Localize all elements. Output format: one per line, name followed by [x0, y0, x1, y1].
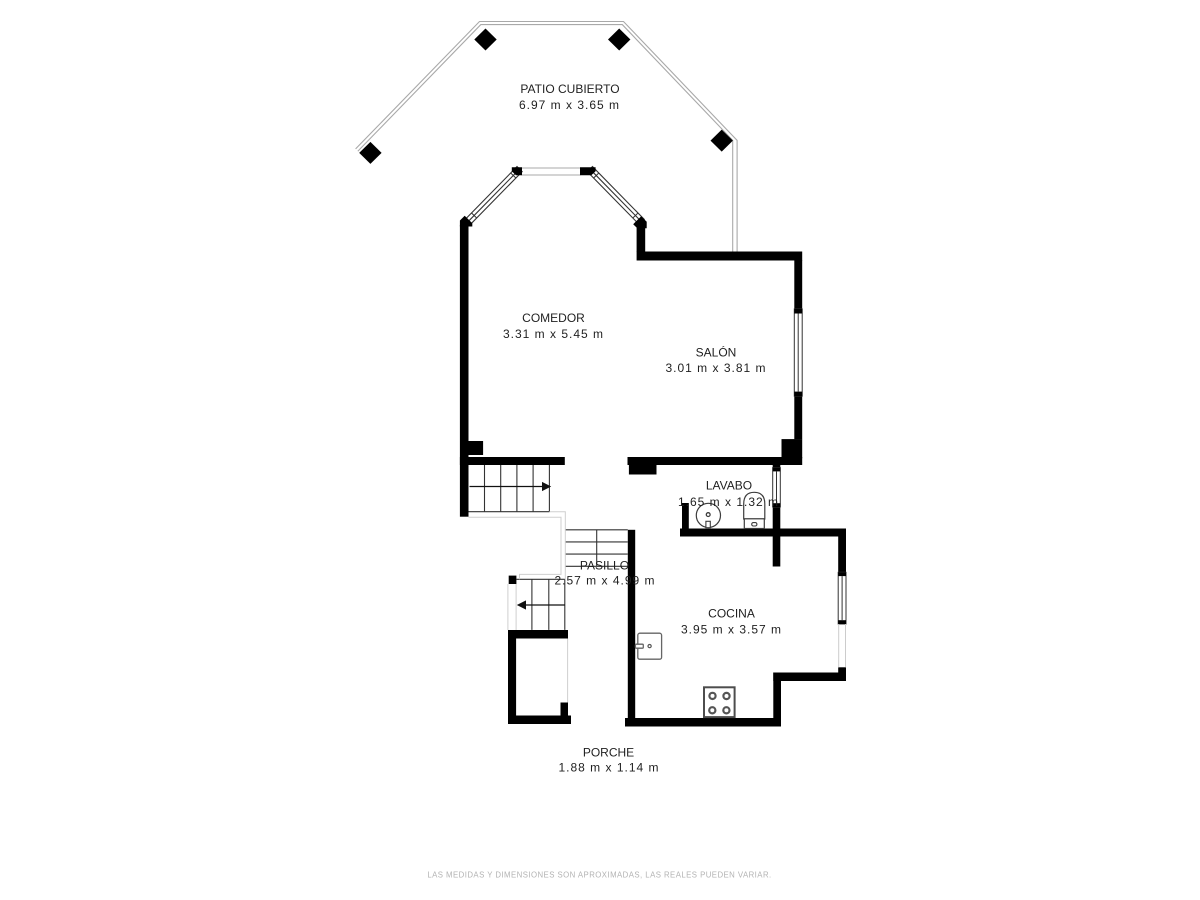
svg-text:3.01 m x 3.81 m: 3.01 m x 3.81 m — [665, 361, 766, 375]
svg-text:LAS MEDIDAS Y DIMENSIONES SON: LAS MEDIDAS Y DIMENSIONES SON APROXIMADA… — [427, 871, 771, 880]
svg-text:PATIO CUBIERTO: PATIO CUBIERTO — [520, 82, 619, 96]
svg-text:PORCHE: PORCHE — [583, 746, 634, 760]
svg-text:3.95 m x 3.57 m: 3.95 m x 3.57 m — [681, 623, 782, 637]
svg-text:1.65 m x 1.32 m: 1.65 m x 1.32 m — [678, 495, 779, 509]
svg-text:LAVABO: LAVABO — [706, 479, 752, 493]
svg-text:3.31 m x 5.45 m: 3.31 m x 5.45 m — [503, 327, 604, 341]
svg-text:COCINA: COCINA — [708, 607, 755, 621]
svg-text:PASILLO: PASILLO — [580, 559, 629, 573]
svg-text:2.57 m x 4.99 m: 2.57 m x 4.99 m — [554, 574, 655, 588]
svg-text:COMEDOR: COMEDOR — [522, 311, 585, 325]
svg-text:1.88 m x 1.14 m: 1.88 m x 1.14 m — [558, 761, 659, 775]
svg-text:SALÓN: SALÓN — [696, 345, 737, 360]
svg-text:6.97 m x 3.65 m: 6.97 m x 3.65 m — [519, 98, 620, 112]
